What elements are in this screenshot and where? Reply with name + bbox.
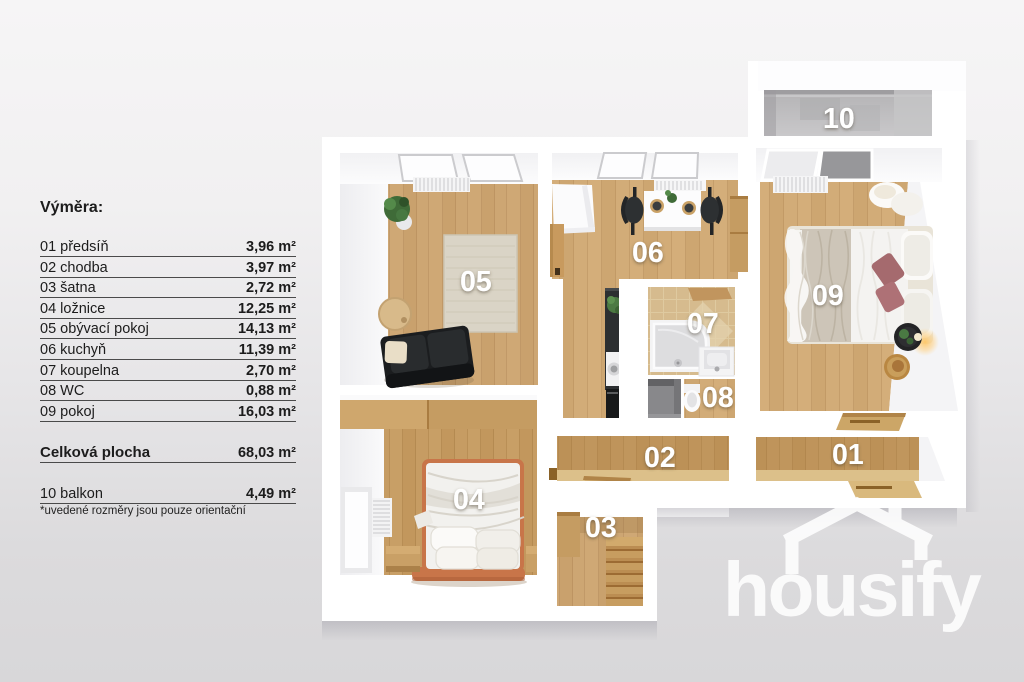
svg-text:07: 07 [687, 308, 719, 340]
svg-text:01: 01 [832, 439, 864, 471]
svg-text:03: 03 [585, 512, 617, 544]
svg-text:06: 06 [632, 237, 664, 269]
svg-text:housify: housify [723, 547, 982, 633]
svg-text:05: 05 [460, 266, 492, 298]
svg-text:09: 09 [812, 280, 844, 312]
svg-text:02: 02 [644, 442, 676, 474]
svg-text:08: 08 [702, 382, 734, 414]
svg-text:10: 10 [823, 103, 855, 135]
svg-text:04: 04 [453, 484, 485, 516]
